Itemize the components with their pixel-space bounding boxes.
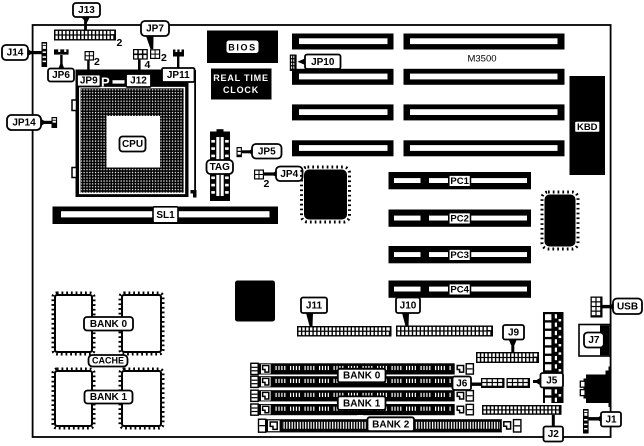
svg-text:JP11: JP11 <box>167 70 190 81</box>
svg-text:M3500: M3500 <box>467 54 496 65</box>
svg-text:J14: J14 <box>7 48 24 59</box>
svg-text:JP10: JP10 <box>311 57 335 68</box>
svg-text:SL1: SL1 <box>156 210 175 221</box>
svg-text:JP5: JP5 <box>258 146 276 157</box>
svg-text:REAL TIME: REAL TIME <box>213 73 269 83</box>
svg-text:JP14: JP14 <box>12 118 36 129</box>
svg-text:JP9: JP9 <box>80 76 98 87</box>
svg-text:J2: J2 <box>548 429 560 440</box>
svg-text:BANK 1: BANK 1 <box>343 398 381 409</box>
svg-text:J9: J9 <box>508 327 520 338</box>
svg-text:BANK 0: BANK 0 <box>90 319 128 330</box>
svg-text:TAG: TAG <box>210 162 231 173</box>
svg-text:J6: J6 <box>456 378 468 389</box>
svg-text:BANK 2: BANK 2 <box>372 419 410 430</box>
svg-text:J1: J1 <box>605 414 617 425</box>
svg-text:JP7: JP7 <box>146 24 164 35</box>
svg-text:USB: USB <box>617 301 638 312</box>
svg-text:PC2: PC2 <box>450 213 468 224</box>
svg-text:P: P <box>101 75 110 90</box>
svg-text:2: 2 <box>161 52 167 64</box>
svg-text:KBD: KBD <box>577 122 598 133</box>
svg-text:J13: J13 <box>78 5 95 16</box>
svg-text:PC1: PC1 <box>450 176 469 187</box>
svg-text:JP6: JP6 <box>52 70 70 81</box>
svg-text:CACHE: CACHE <box>92 356 124 366</box>
svg-text:BANK 0: BANK 0 <box>343 371 381 382</box>
svg-text:J5: J5 <box>546 375 558 386</box>
svg-text:J7: J7 <box>588 335 600 346</box>
svg-text:BIOS: BIOS <box>228 43 256 53</box>
svg-text:J11: J11 <box>306 300 323 311</box>
svg-text:J12: J12 <box>130 76 147 87</box>
svg-text:CLOCK: CLOCK <box>223 85 259 95</box>
svg-text:2: 2 <box>264 178 270 190</box>
svg-text:JP4: JP4 <box>280 169 298 180</box>
svg-text:PC3: PC3 <box>450 250 468 261</box>
svg-text:PC4: PC4 <box>450 284 469 295</box>
svg-text:2: 2 <box>117 37 123 49</box>
svg-text:BANK 1: BANK 1 <box>90 392 128 403</box>
svg-text:4: 4 <box>145 59 151 71</box>
svg-text:CPU: CPU <box>122 139 143 150</box>
svg-text:2: 2 <box>94 56 100 68</box>
svg-text:J10: J10 <box>400 300 417 311</box>
